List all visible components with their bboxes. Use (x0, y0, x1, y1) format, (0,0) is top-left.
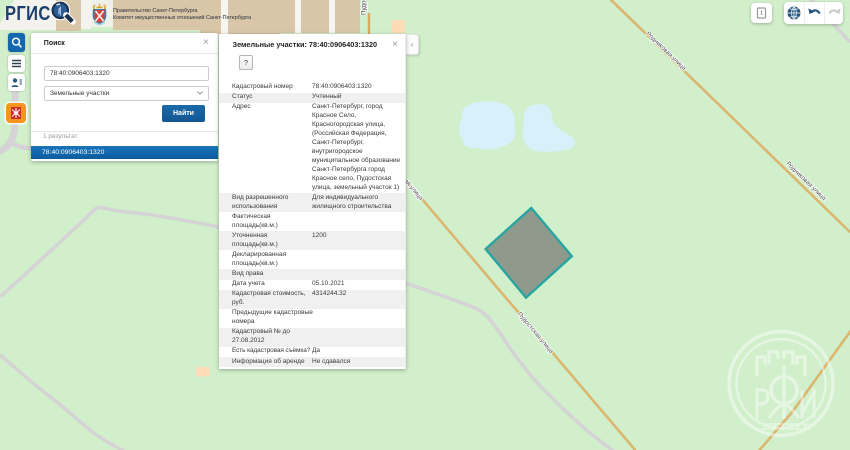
svg-text:Пудостская улица: Пудостская улица (361, 0, 368, 15)
